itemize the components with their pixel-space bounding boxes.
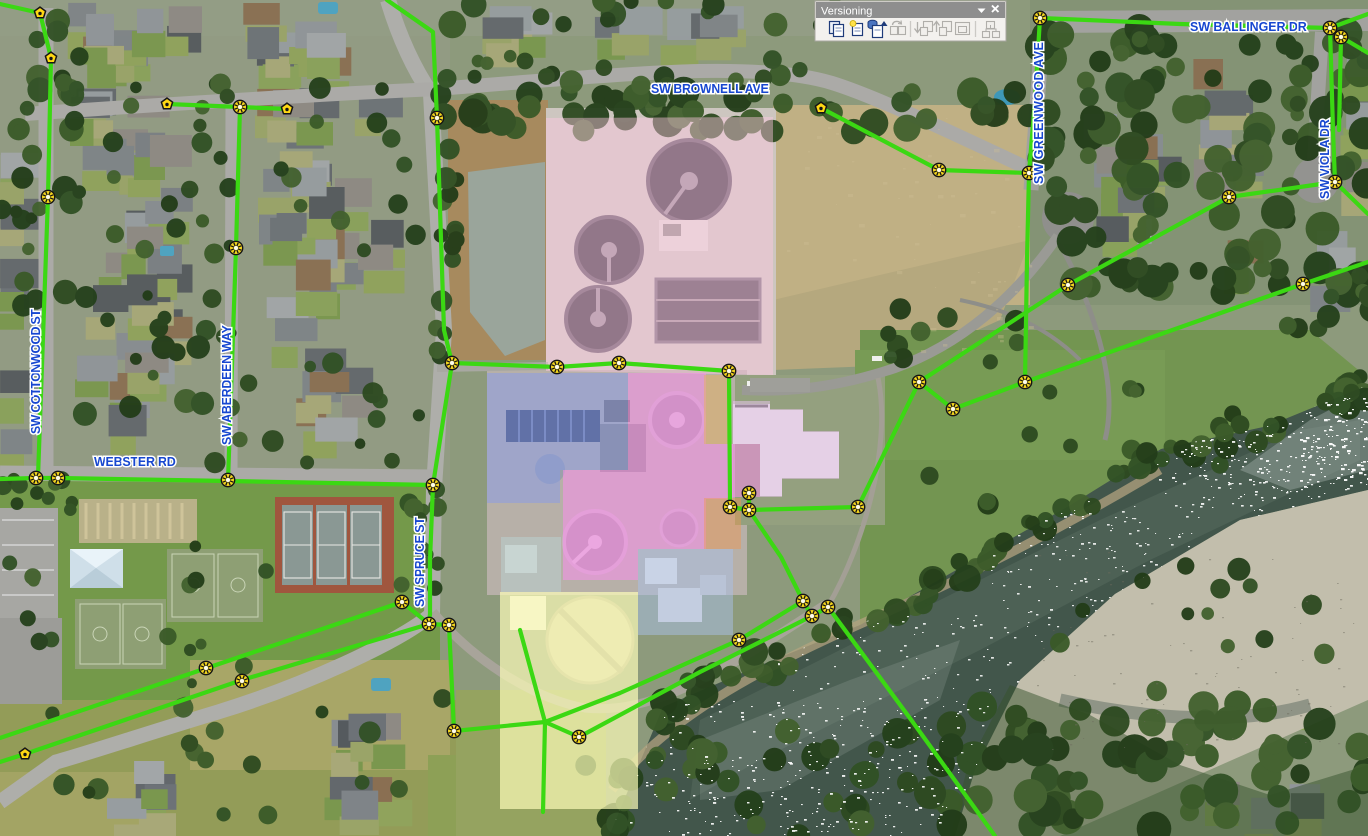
svg-text:SW GREENWOOD AVE: SW GREENWOOD AVE — [1032, 42, 1046, 184]
svg-text:SW VIOLA DR: SW VIOLA DR — [1318, 119, 1332, 199]
svg-text:Versioning: Versioning — [821, 6, 872, 18]
svg-text:WEBSTER RD: WEBSTER RD — [94, 455, 176, 469]
svg-text:SW BALLINGER DR: SW BALLINGER DR — [1190, 20, 1307, 34]
svg-text:SW COTTONWOOD ST: SW COTTONWOOD ST — [29, 309, 43, 434]
svg-text:SW SPRUCE ST: SW SPRUCE ST — [413, 517, 427, 607]
svg-text:SW ABERDEEN WAY: SW ABERDEEN WAY — [220, 325, 234, 445]
svg-text:SW BROWNELL AVE: SW BROWNELL AVE — [651, 82, 769, 96]
